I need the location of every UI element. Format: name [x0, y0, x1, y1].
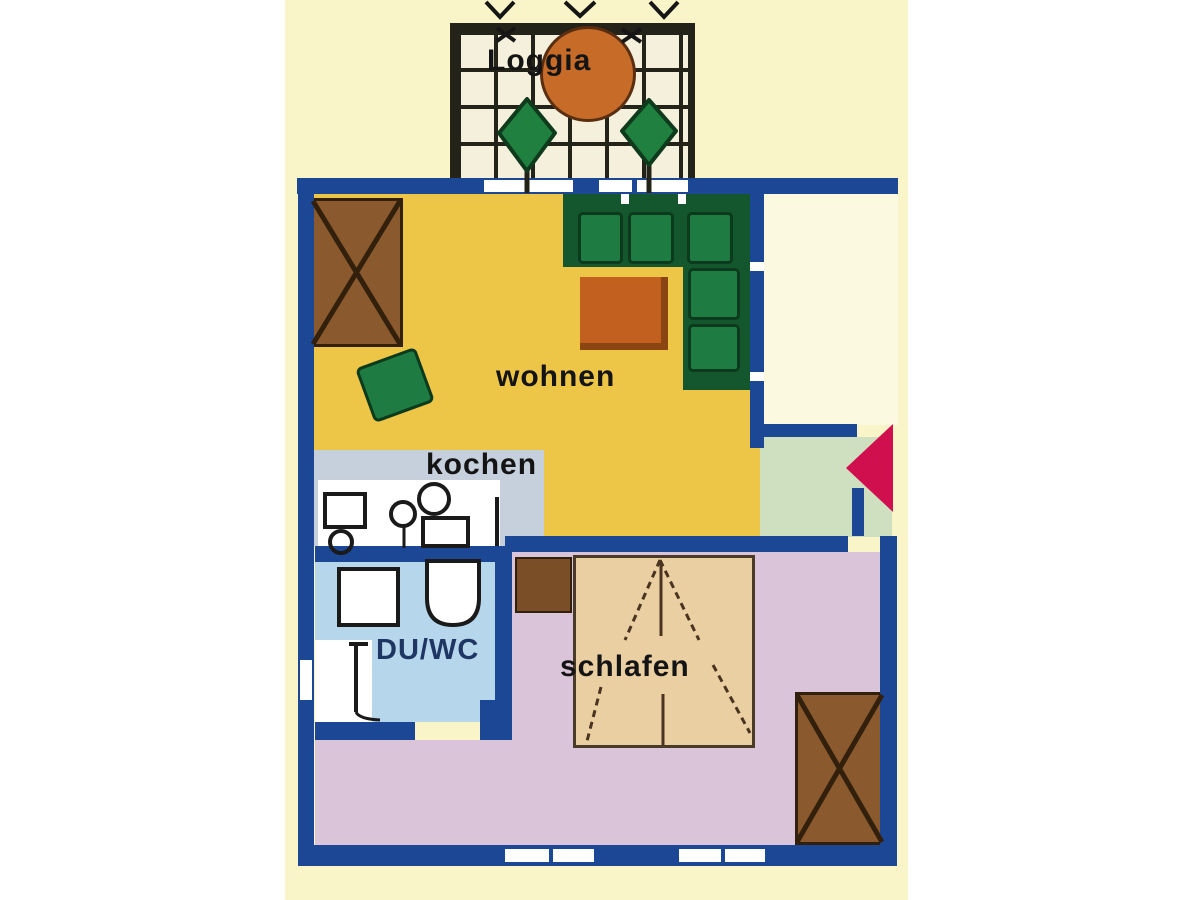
plant-icon-right	[622, 100, 676, 165]
kitchen-label: kochen	[426, 448, 537, 482]
loggia-railing-marks	[486, 2, 678, 42]
loggia-label: Loggia	[487, 44, 591, 78]
living-wardrobe-x	[313, 201, 400, 344]
living-room-label: wohnen	[496, 360, 615, 394]
plan-detail-overlay	[0, 0, 1200, 900]
entrance-arrow-icon	[846, 424, 893, 512]
plant-stems	[527, 148, 649, 193]
bedroom-wardrobe-x	[797, 695, 882, 842]
bedroom-label: schlafen	[560, 650, 690, 684]
floorplan-canvas: Loggia wohnen kochen DU/WC schlafen	[0, 0, 1200, 900]
kitchen-appliance-icons	[325, 484, 497, 553]
toilet-icon	[427, 561, 479, 625]
plant-icon-left	[499, 99, 555, 171]
bath-label: DU/WC	[376, 634, 479, 667]
